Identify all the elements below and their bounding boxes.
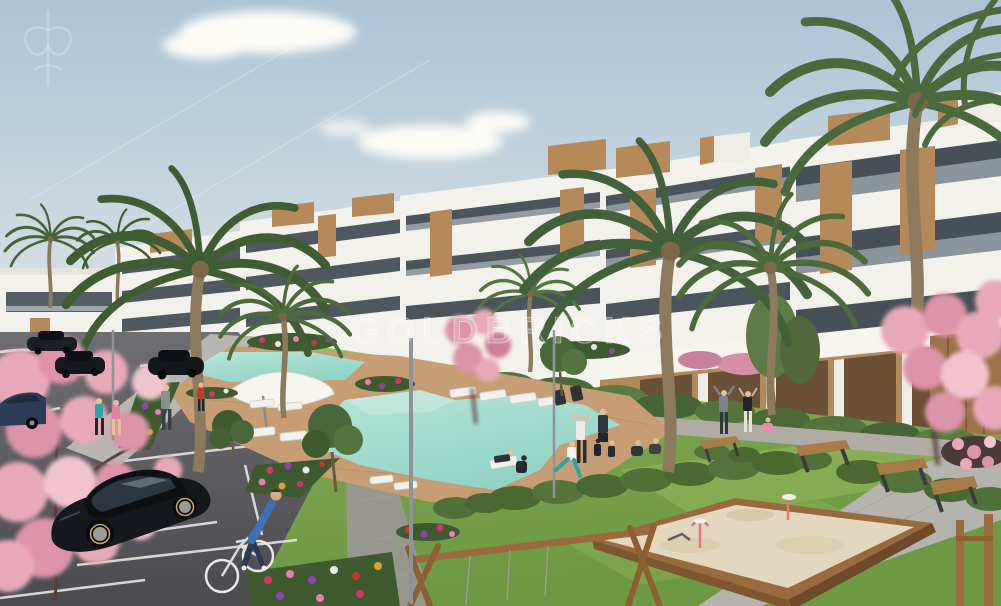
bed-swing-left <box>396 523 460 541</box>
architectural-render: GOLDBRICKS <box>0 0 1001 606</box>
bed-pool-right <box>355 376 415 392</box>
scene-canvas <box>0 0 1001 606</box>
